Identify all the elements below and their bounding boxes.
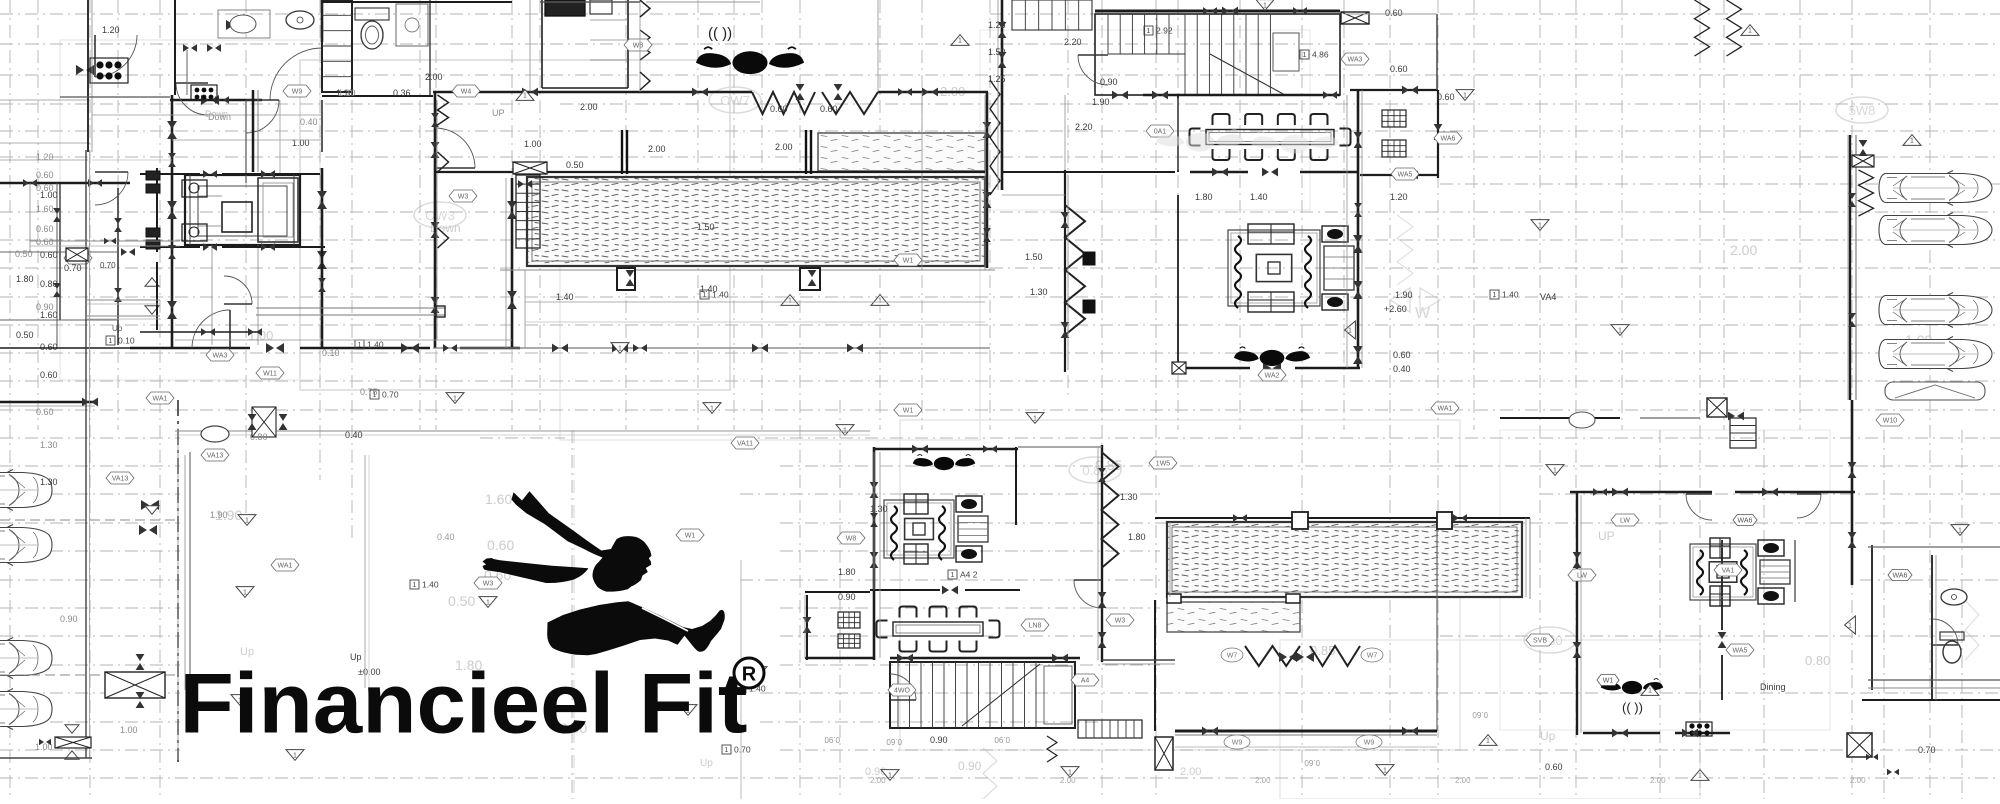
- svg-text:1: 1: [618, 346, 622, 353]
- svg-text:0.75: 0.75: [360, 387, 378, 397]
- svg-text:1: 1: [703, 292, 707, 299]
- svg-text:1.30: 1.30: [40, 477, 58, 487]
- svg-text:1: 1: [1493, 292, 1497, 299]
- svg-text:1: 1: [1618, 328, 1622, 335]
- svg-text:2.00: 2.00: [870, 776, 886, 785]
- svg-text:4WO: 4WO: [894, 688, 911, 695]
- svg-text:1.60: 1.60: [485, 491, 512, 507]
- svg-text:1: 1: [878, 298, 882, 305]
- svg-text:WA5: WA5: [1733, 648, 1748, 655]
- svg-text:0.70: 0.70: [1918, 745, 1936, 755]
- svg-text:1.90: 1.90: [210, 510, 228, 520]
- svg-text:1.40: 1.40: [556, 292, 574, 302]
- svg-text:0.60: 0.60: [1390, 64, 1408, 74]
- svg-text:1.80: 1.80: [838, 567, 856, 577]
- svg-text:0.60: 0.60: [1385, 8, 1403, 18]
- svg-text:W3: W3: [458, 194, 469, 201]
- svg-text:Up: Up: [112, 324, 123, 333]
- svg-text:0.50: 0.50: [566, 160, 584, 170]
- svg-text:LW: LW: [1577, 573, 1587, 580]
- svg-text:0.60: 0.60: [36, 237, 54, 247]
- svg-text:0.80: 0.80: [1805, 653, 1830, 668]
- svg-text:1.25: 1.25: [988, 20, 1006, 30]
- svg-text:Dining: Dining: [1760, 682, 1786, 692]
- svg-text:1: 1: [453, 396, 457, 403]
- svg-text:0.40: 0.40: [1393, 364, 1411, 374]
- svg-text:1.50: 1.50: [988, 47, 1006, 57]
- svg-text:1.40: 1.40: [1250, 192, 1268, 202]
- svg-text:Financieel Fit: Financieel Fit: [180, 657, 748, 752]
- svg-text:1: 1: [1748, 28, 1752, 35]
- svg-text:0.40: 0.40: [437, 532, 455, 542]
- svg-text:SVB: SVB: [1533, 638, 1547, 645]
- svg-text:WA2: WA2: [1265, 373, 1280, 380]
- svg-text:2.00: 2.00: [580, 102, 598, 112]
- svg-text:WA1: WA1: [153, 396, 168, 403]
- svg-text:0.90: 0.90: [60, 614, 78, 624]
- svg-text:W9: W9: [1232, 740, 1243, 747]
- svg-text:1.00: 1.00: [524, 139, 542, 149]
- svg-text:0.70: 0.70: [382, 390, 399, 400]
- svg-text:1.30: 1.30: [40, 440, 58, 450]
- svg-text:1: 1: [1486, 738, 1490, 745]
- svg-text:W1: W1: [1603, 678, 1614, 685]
- svg-text:2.20: 2.20: [1064, 37, 1082, 47]
- svg-text:0.60: 0.60: [886, 737, 902, 746]
- svg-text:A4 2: A4 2: [960, 570, 978, 580]
- svg-text:1.40: 1.40: [712, 290, 729, 300]
- svg-text:WA6: WA6: [1441, 136, 1456, 143]
- svg-text:0.60: 0.60: [1437, 92, 1455, 102]
- svg-text:0.90: 0.90: [36, 302, 54, 312]
- svg-text:0.60: 0.60: [487, 537, 514, 553]
- svg-text:1: 1: [888, 773, 892, 780]
- svg-text:1: 1: [951, 572, 955, 579]
- svg-text:0.90: 0.90: [838, 592, 856, 602]
- svg-text:W7: W7: [1227, 653, 1238, 660]
- svg-text:5W8: 5W8: [1849, 103, 1876, 118]
- svg-text:2.00: 2.00: [1650, 776, 1666, 785]
- svg-text:1: 1: [358, 342, 362, 349]
- svg-text:1.90: 1.90: [1395, 290, 1413, 300]
- svg-text:1: 1: [788, 298, 792, 305]
- svg-text:1.80: 1.80: [1195, 192, 1213, 202]
- svg-text:1: 1: [1538, 223, 1542, 230]
- svg-text:W1: W1: [685, 533, 696, 540]
- svg-text:(( )): (( )): [708, 25, 732, 42]
- svg-text:1.80: 1.80: [16, 274, 34, 284]
- svg-text:1.00: 1.00: [120, 725, 138, 735]
- svg-text:1: 1: [109, 338, 113, 345]
- svg-text:1: 1: [1698, 773, 1702, 780]
- svg-text:LW: LW: [1620, 518, 1630, 525]
- svg-text:1.30: 1.30: [870, 504, 888, 514]
- svg-text:0.90: 0.90: [1100, 77, 1118, 87]
- svg-text:VA13: VA13: [207, 453, 224, 460]
- svg-text:1.10: 1.10: [338, 88, 356, 98]
- svg-text:UP: UP: [1598, 529, 1615, 543]
- svg-text:VA1: VA1: [1722, 568, 1735, 575]
- svg-text:WA1: WA1: [278, 563, 293, 570]
- svg-text:1.30: 1.30: [1120, 492, 1138, 502]
- svg-text:R: R: [742, 664, 757, 686]
- svg-text:0.60: 0.60: [36, 170, 54, 180]
- svg-text:1.00: 1.00: [292, 138, 310, 148]
- svg-text:W11: W11: [263, 371, 277, 378]
- svg-text:2.00: 2.00: [1455, 776, 1471, 785]
- svg-text:1: 1: [1147, 28, 1151, 35]
- svg-text:1: 1: [1553, 468, 1557, 475]
- svg-text:0.60: 0.60: [770, 104, 788, 114]
- svg-text:1.90: 1.90: [1092, 97, 1110, 107]
- svg-text:1: 1: [710, 406, 714, 413]
- svg-text:1.30: 1.30: [1030, 287, 1048, 297]
- svg-text:2.00: 2.00: [425, 72, 443, 82]
- svg-text:W3: W3: [1115, 618, 1126, 625]
- svg-text:0.60: 0.60: [1472, 710, 1488, 719]
- svg-text:0.90: 0.90: [824, 735, 840, 744]
- svg-text:2.00: 2.00: [1060, 776, 1076, 785]
- svg-text:2.20: 2.20: [1075, 122, 1093, 132]
- svg-text:WA6: WA6: [1893, 573, 1908, 580]
- svg-text:1: 1: [523, 93, 527, 100]
- svg-text:0.60: 0.60: [36, 183, 54, 193]
- svg-text:0.60: 0.60: [40, 342, 58, 352]
- svg-text:1: 1: [293, 753, 297, 760]
- svg-text:Up: Up: [700, 758, 713, 769]
- svg-text:UP: UP: [492, 108, 505, 118]
- svg-text:VA4: VA4: [1540, 292, 1556, 302]
- svg-text:0.10: 0.10: [118, 336, 135, 346]
- svg-text:0.60: 0.60: [36, 407, 54, 417]
- svg-text:0.60: 0.60: [820, 104, 838, 114]
- svg-text:WA3: WA3: [213, 353, 228, 360]
- svg-text:W1: W1: [903, 408, 914, 415]
- svg-text:1: 1: [1303, 52, 1307, 59]
- svg-text:2.00: 2.00: [648, 144, 666, 154]
- svg-text:1.40: 1.40: [367, 340, 384, 350]
- svg-text:1.60: 1.60: [36, 204, 54, 214]
- svg-text:0.90: 0.90: [930, 735, 948, 745]
- svg-text:0.36: 0.36: [393, 88, 411, 98]
- svg-text:0.50: 0.50: [16, 330, 34, 340]
- svg-text:1.40: 1.40: [422, 580, 439, 590]
- svg-text:2.00: 2.00: [1730, 242, 1757, 258]
- svg-text:0.50: 0.50: [448, 593, 475, 609]
- svg-text:W7: W7: [1367, 653, 1378, 660]
- svg-text:0.90: 0.90: [994, 735, 1010, 744]
- svg-text:Up: Up: [1540, 729, 1556, 743]
- svg-text:W1: W1: [903, 258, 914, 265]
- svg-text:0.80: 0.80: [250, 432, 268, 442]
- svg-text:0.50: 0.50: [15, 249, 33, 259]
- svg-text:1: 1: [486, 600, 490, 607]
- svg-text:2.00: 2.00: [1255, 776, 1271, 785]
- svg-text:0.70: 0.70: [64, 263, 82, 273]
- svg-text:4.86: 4.86: [1312, 50, 1329, 60]
- svg-text:2.00: 2.00: [1850, 776, 1866, 785]
- svg-text:0.60: 0.60: [1304, 758, 1320, 767]
- svg-text:1.80: 1.80: [1128, 532, 1146, 542]
- svg-text:1.20: 1.20: [1390, 192, 1408, 202]
- svg-text:1: 1: [245, 518, 249, 525]
- svg-text:0.60: 0.60: [1393, 350, 1411, 360]
- svg-text:1.25: 1.25: [988, 74, 1006, 84]
- svg-text:0.40: 0.40: [300, 117, 318, 127]
- svg-text:1: 1: [1263, 3, 1267, 10]
- svg-text:0.60: 0.60: [1545, 762, 1563, 772]
- svg-text:LN8: LN8: [1029, 623, 1042, 630]
- svg-text:W9: W9: [1364, 740, 1375, 747]
- svg-text:0.60: 0.60: [36, 224, 54, 234]
- svg-text:1: 1: [1958, 528, 1962, 535]
- svg-text:WA1: WA1: [1438, 406, 1453, 413]
- svg-text:WA5: WA5: [1398, 172, 1413, 179]
- svg-text:W4: W4: [461, 89, 472, 96]
- svg-text:0.90: 0.90: [958, 759, 982, 773]
- svg-text:W8: W8: [846, 536, 857, 543]
- svg-text:1: 1: [243, 590, 247, 597]
- svg-text:1: 1: [1910, 138, 1914, 145]
- svg-text:1.40: 1.40: [1502, 290, 1519, 300]
- svg-text:A4: A4: [1081, 678, 1090, 685]
- svg-text:W8: W8: [633, 43, 644, 50]
- svg-text:1.50: 1.50: [697, 222, 715, 232]
- svg-text:0.70: 0.70: [100, 261, 116, 270]
- svg-text:(( )): (( )): [1622, 700, 1643, 715]
- svg-text:1: 1: [1648, 688, 1652, 695]
- svg-text:2.00: 2.00: [775, 142, 793, 152]
- svg-text:2.00: 2.00: [1180, 766, 1201, 778]
- svg-text:1.20: 1.20: [102, 25, 120, 35]
- svg-text:1: 1: [413, 582, 417, 589]
- svg-text:WA3: WA3: [1348, 57, 1363, 64]
- svg-text:Down: Down: [205, 109, 228, 119]
- svg-text:1: 1: [958, 38, 962, 45]
- svg-text:+2.60: +2.60: [1384, 304, 1407, 314]
- svg-text:0.60: 0.60: [40, 250, 58, 260]
- svg-text:0.40: 0.40: [345, 430, 363, 440]
- svg-text:1: 1: [1033, 416, 1037, 423]
- svg-text:0.10: 0.10: [322, 348, 340, 358]
- svg-text:2.92: 2.92: [1156, 26, 1173, 36]
- svg-text:OW7: OW7: [720, 93, 750, 108]
- svg-text:0.60: 0.60: [40, 370, 58, 380]
- svg-text:1: 1: [1848, 623, 1852, 630]
- svg-text:W3: W3: [483, 581, 494, 588]
- svg-text:VA13: VA13: [112, 476, 129, 483]
- svg-text:1: 1: [1348, 328, 1352, 335]
- svg-text:1.50: 1.50: [1025, 252, 1043, 262]
- svg-text:1.20: 1.20: [36, 152, 54, 162]
- svg-text:VA11: VA11: [737, 441, 753, 448]
- svg-text:WA6: WA6: [1738, 518, 1753, 525]
- svg-text:1: 1: [1383, 768, 1387, 775]
- svg-text:1W5: 1W5: [1156, 461, 1171, 468]
- svg-text:1: 1: [1463, 93, 1467, 100]
- svg-text:W9: W9: [292, 89, 303, 96]
- svg-text:W10: W10: [1883, 418, 1898, 425]
